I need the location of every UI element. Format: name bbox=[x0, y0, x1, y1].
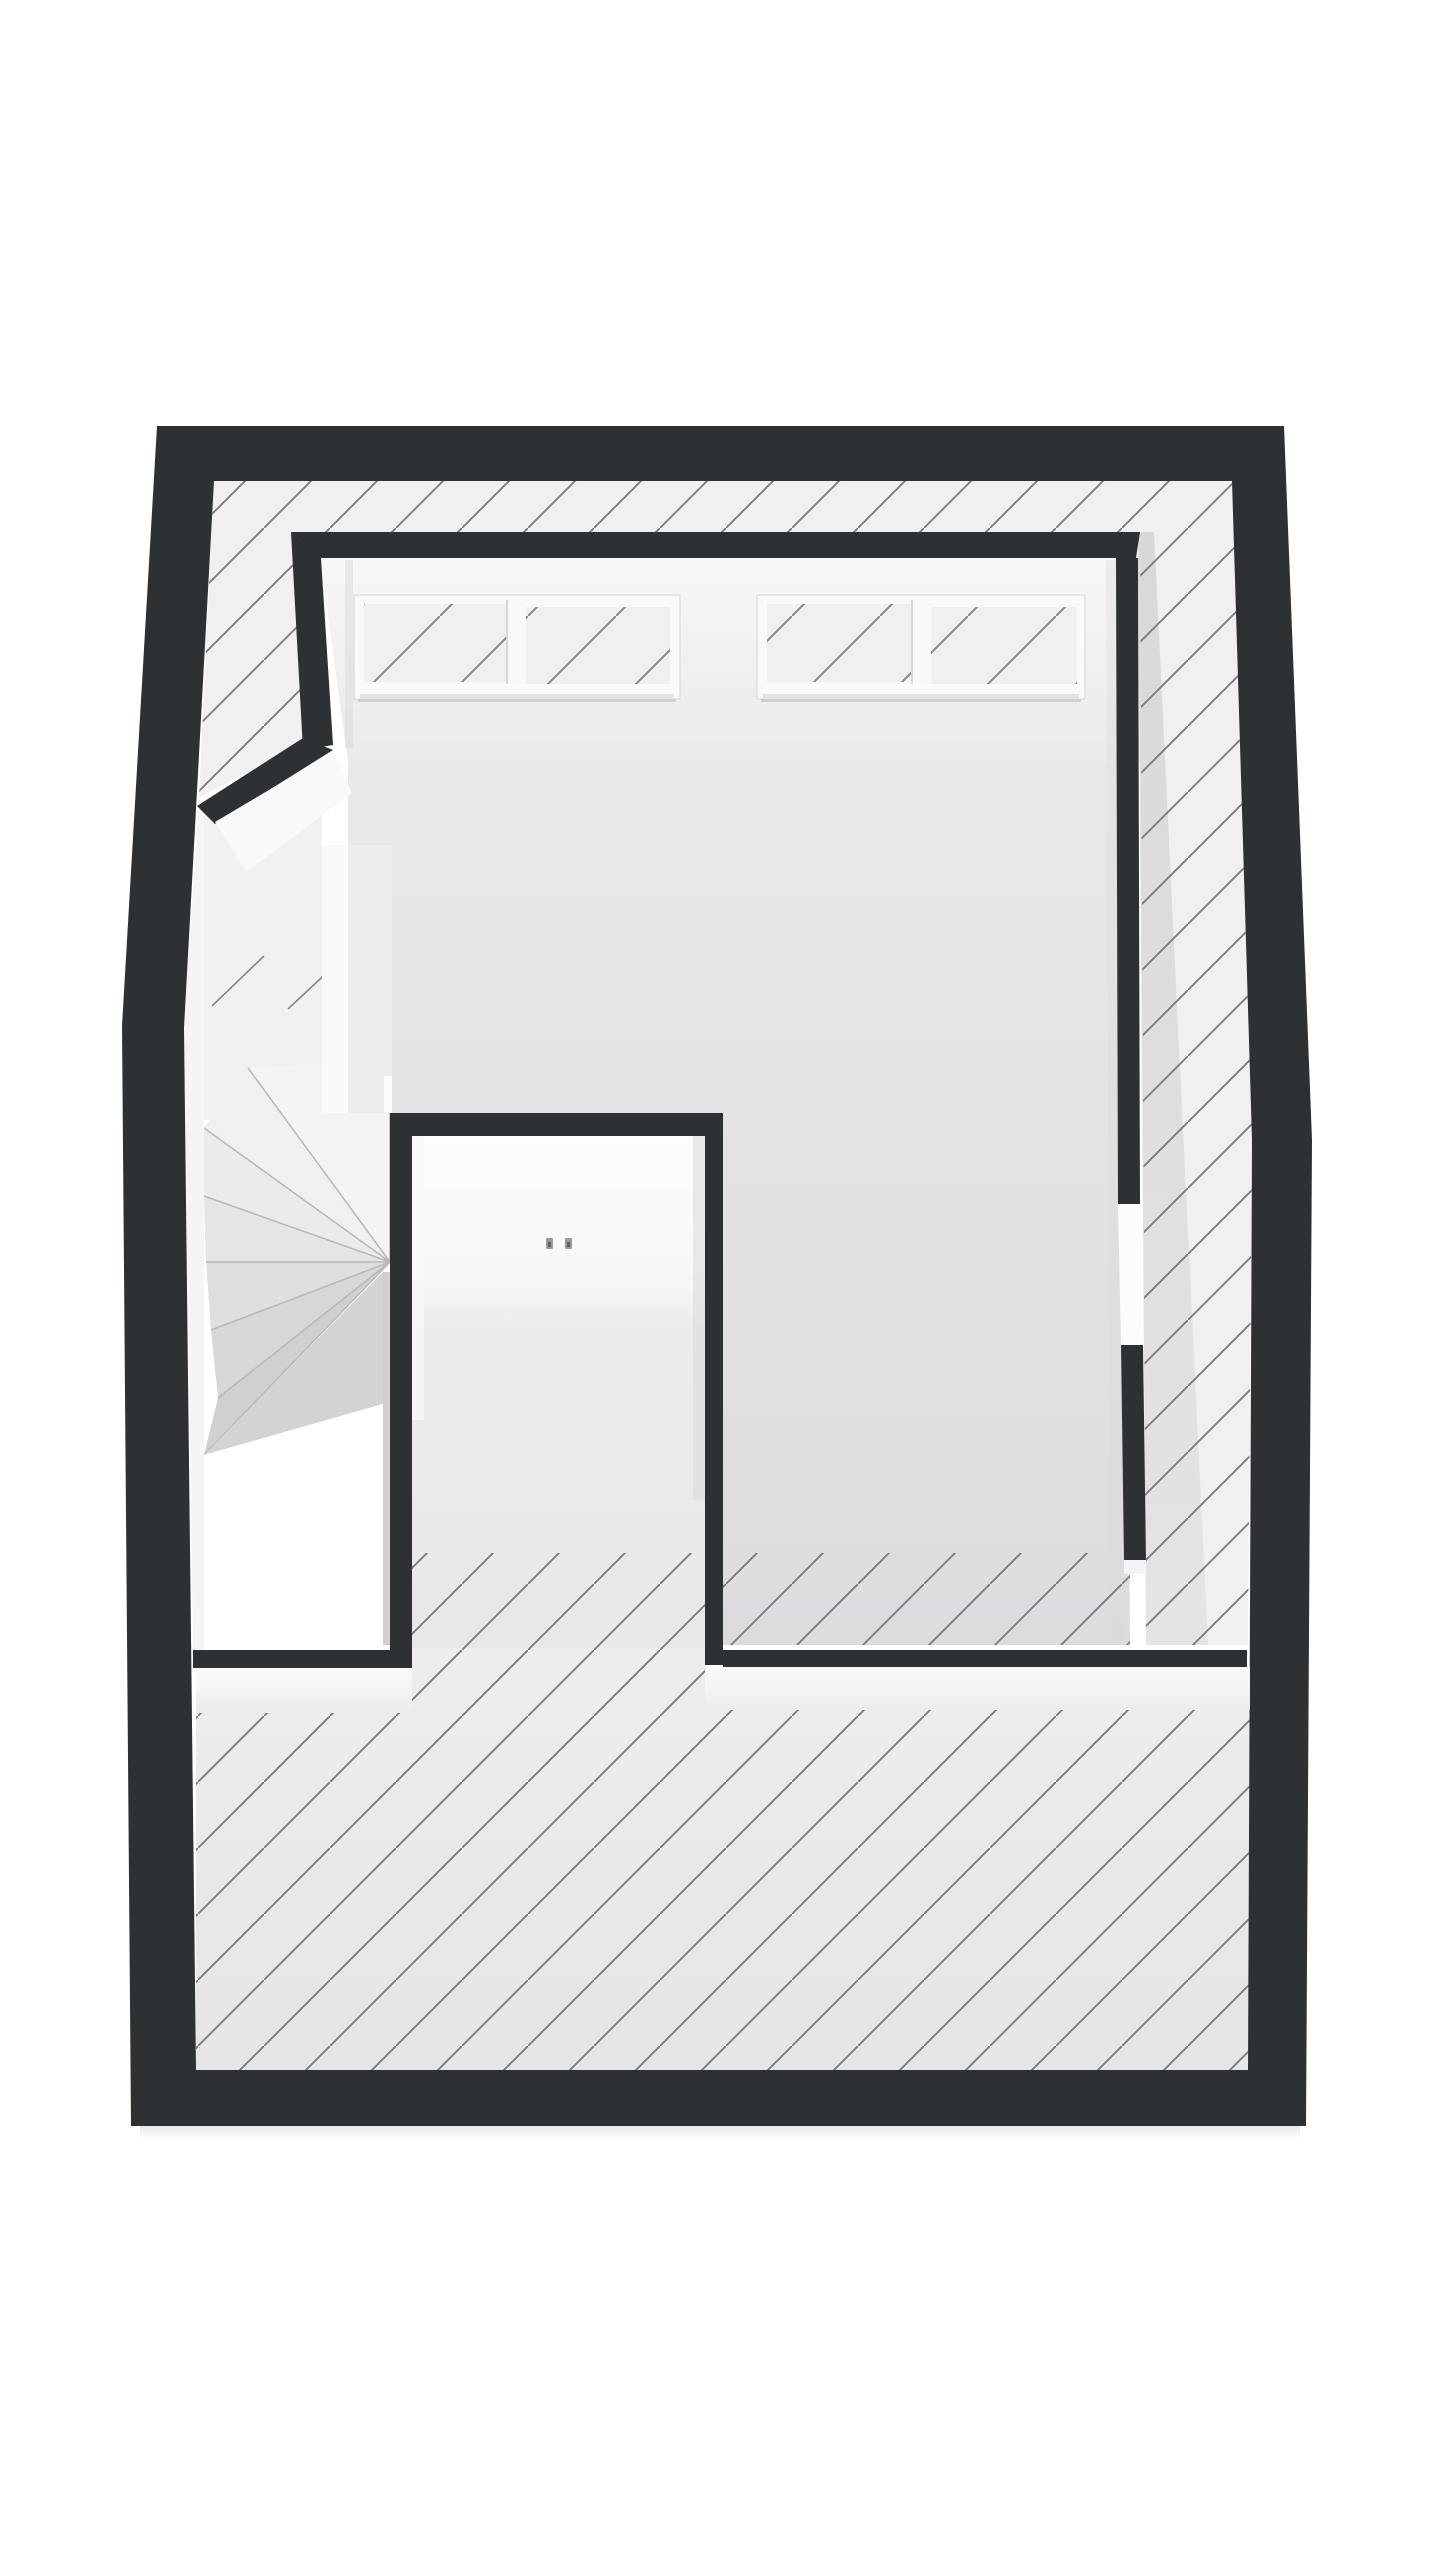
room-corner-shadow-left bbox=[345, 560, 353, 748]
roof-window-right bbox=[757, 595, 1085, 702]
closet-west-wall bbox=[390, 1113, 412, 1668]
floorplan-canvas bbox=[0, 0, 1440, 2560]
closet-east-wall bbox=[705, 1113, 723, 1665]
closet bbox=[412, 1136, 705, 1648]
floorplan-svg bbox=[0, 0, 1440, 2560]
window-sill bbox=[763, 684, 1079, 693]
closet-right-shadow bbox=[693, 1136, 705, 1500]
closet-low-headroom-hatch bbox=[412, 1553, 705, 1648]
room-low-headroom-hatch bbox=[723, 1553, 1130, 1645]
sash-shadow bbox=[911, 600, 913, 692]
window-sill-shadow bbox=[761, 699, 1081, 702]
room-east-wall-upper bbox=[1116, 558, 1140, 1204]
interior-door-east-wall bbox=[1118, 1204, 1143, 1345]
window-sill-shadow bbox=[358, 699, 676, 702]
room-east-wall-lower bbox=[1121, 1345, 1146, 1560]
staircase bbox=[184, 764, 392, 1650]
stair-stringer-side bbox=[383, 1272, 390, 1645]
stairwell-south-wall bbox=[193, 1650, 412, 1668]
room-north-wall bbox=[291, 532, 1140, 558]
roof-window-left bbox=[354, 595, 680, 702]
closet-north-wall bbox=[390, 1113, 723, 1136]
stair-newel-post bbox=[384, 1076, 392, 1113]
knee-wall-south-face bbox=[705, 1667, 1250, 1710]
building-shadow bbox=[140, 2126, 1300, 2140]
window-sill bbox=[360, 684, 674, 693]
door-handle-left-detail bbox=[548, 1242, 551, 1247]
east-wall-end-cap bbox=[1124, 1560, 1146, 1574]
door-handle-right-detail bbox=[567, 1242, 570, 1247]
window-sill-edge bbox=[763, 694, 1079, 698]
window-sill-edge bbox=[360, 694, 674, 698]
roof-slope-strip-right bbox=[1138, 481, 1252, 1645]
roof-slope-strip-top bbox=[214, 481, 1232, 532]
closet-left-face bbox=[412, 1136, 424, 1420]
stairwell-wall-south-face bbox=[196, 1668, 412, 1713]
sash-shadow bbox=[506, 600, 508, 692]
knee-wall bbox=[723, 1650, 1247, 1667]
stair-upper-flight bbox=[348, 845, 392, 1113]
window-center-mullion bbox=[913, 600, 929, 692]
stair-balustrade bbox=[322, 845, 348, 1113]
window-center-mullion bbox=[508, 600, 524, 692]
